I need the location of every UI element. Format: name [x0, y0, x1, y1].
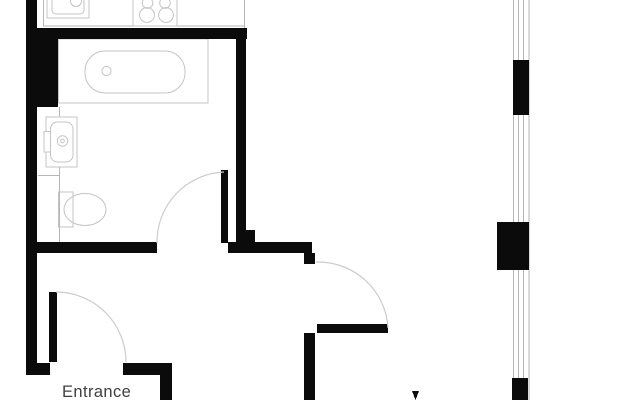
bathtub-basin — [85, 51, 185, 93]
wall-bathroom-right — [236, 28, 246, 243]
wall-entrance-right — [123, 363, 172, 375]
cooktop-icon — [133, 0, 177, 26]
burner-icon — [160, 0, 171, 8]
washbasin — [44, 117, 77, 167]
wall-entrance-stub — [160, 375, 172, 400]
burner-icon — [142, 0, 153, 8]
kitchen-sink — [47, 0, 89, 18]
living-room-door-swing-arc — [316, 262, 388, 328]
floor-plan-drawing — [0, 0, 640, 400]
wall-hall-right — [304, 333, 315, 400]
entrance-door-leaf — [49, 292, 57, 362]
entrance-label: Entrance — [62, 383, 131, 400]
window-pier-bottom — [512, 378, 528, 400]
bathtub-drain-icon — [102, 66, 111, 75]
burner-icon — [140, 8, 155, 23]
wall-kitchen-bottom — [26, 28, 247, 39]
sink-faucet-icon — [71, 0, 82, 7]
wall-bathroom-bottom-left — [26, 242, 157, 253]
window-pier-middle — [497, 222, 529, 270]
bathroom-door-swing-arc — [157, 172, 224, 243]
wall-bathroom-bottom-right — [228, 242, 312, 253]
wall-stub-hall — [304, 253, 315, 264]
toilet — [59, 192, 107, 227]
toilet-bowl — [64, 194, 106, 226]
bathroom-door-leaf — [221, 170, 228, 243]
floor-plan: Entrance — [0, 0, 640, 400]
living-room-door-leaf — [317, 324, 388, 333]
wall-block-kitchen-bath — [26, 28, 58, 107]
wall-corner-step — [236, 230, 255, 243]
burner-icon — [159, 8, 174, 23]
sink-counter-outline — [47, 0, 89, 18]
entrance-door-swing-arc — [56, 292, 126, 362]
bathtub — [59, 39, 209, 103]
wall-entrance-left — [26, 363, 50, 375]
sink-basin — [52, 0, 84, 14]
washbasin-faucet-icon — [44, 132, 51, 153]
wall-mark-bottom — [412, 391, 419, 400]
window-pier-top — [513, 60, 529, 115]
